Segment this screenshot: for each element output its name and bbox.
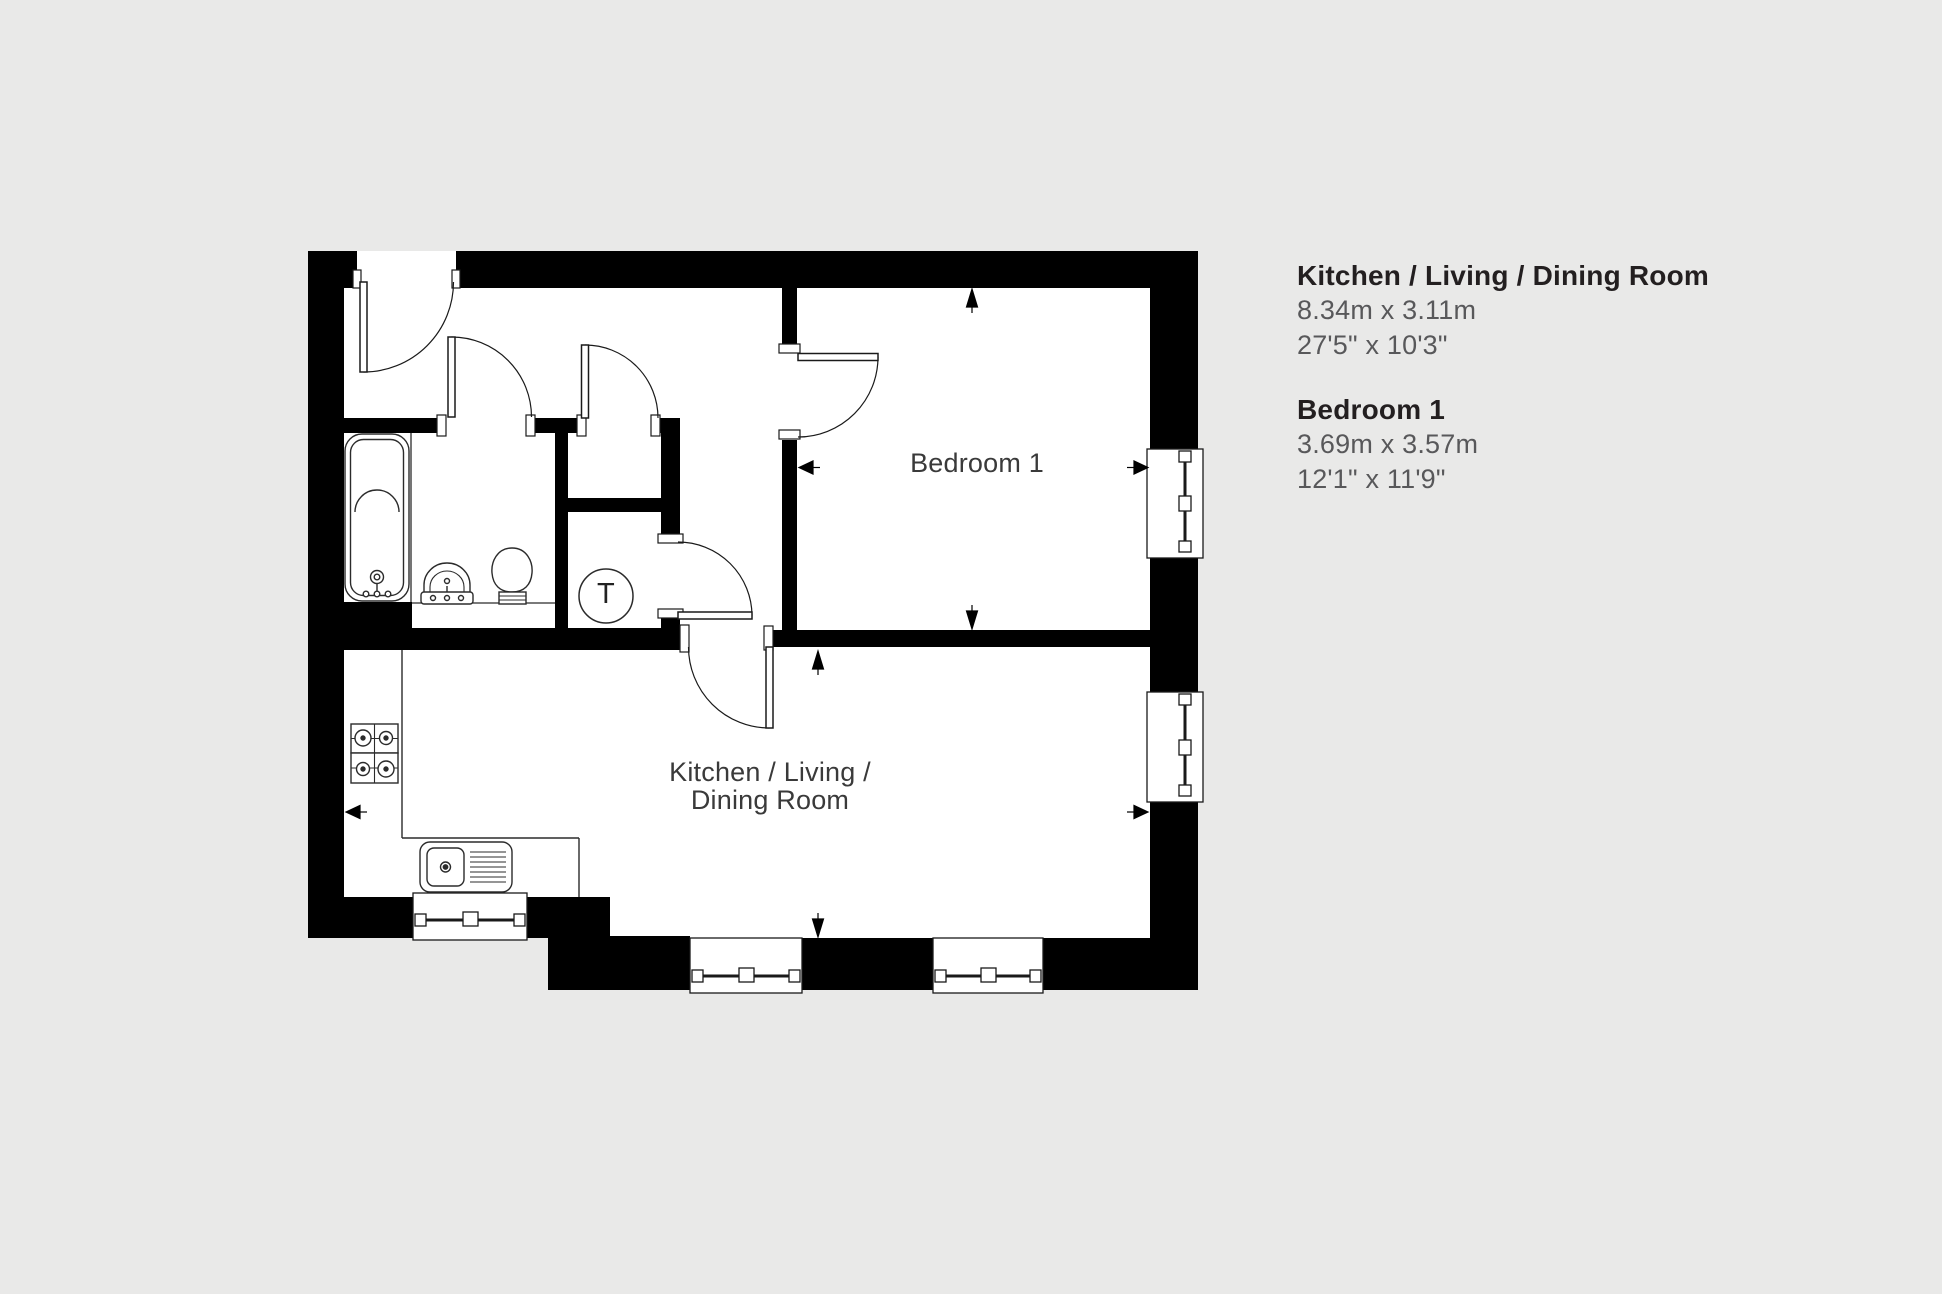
room-spec-kitchen: Kitchen / Living / Dining Room 8.34m x 3… [1297,259,1857,363]
room-name: Bedroom 1 [1297,393,1857,427]
sink-icon [420,842,512,892]
floor-plan [0,0,1942,1294]
room-size-imperial: 27'5" x 10'3" [1297,328,1857,363]
room-spec-bedroom: Bedroom 1 3.69m x 3.57m 12'1" x 11'9" [1297,393,1857,497]
hob-icon [351,724,398,783]
kitchen-window-icon [413,893,527,940]
living-bottom-window-right-icon [933,938,1043,993]
living-side-window-icon [1147,692,1203,802]
bedroom-window-icon [1147,449,1203,558]
kitchen-living-label-line1: Kitchen / Living / [645,758,895,786]
tank-label: T [576,580,636,608]
room-name: Kitchen / Living / Dining Room [1297,259,1857,293]
bedroom-label: Bedroom 1 [877,449,1077,477]
living-bottom-window-left-icon [690,938,802,993]
room-size-metric: 8.34m x 3.11m [1297,293,1857,328]
bathtub-icon [345,434,409,601]
room-size-metric: 3.69m x 3.57m [1297,427,1857,462]
room-size-imperial: 12'1" x 11'9" [1297,462,1857,497]
kitchen-living-label-line2: Dining Room [645,786,895,814]
kitchen-living-label: Kitchen / Living / Dining Room [645,758,895,814]
